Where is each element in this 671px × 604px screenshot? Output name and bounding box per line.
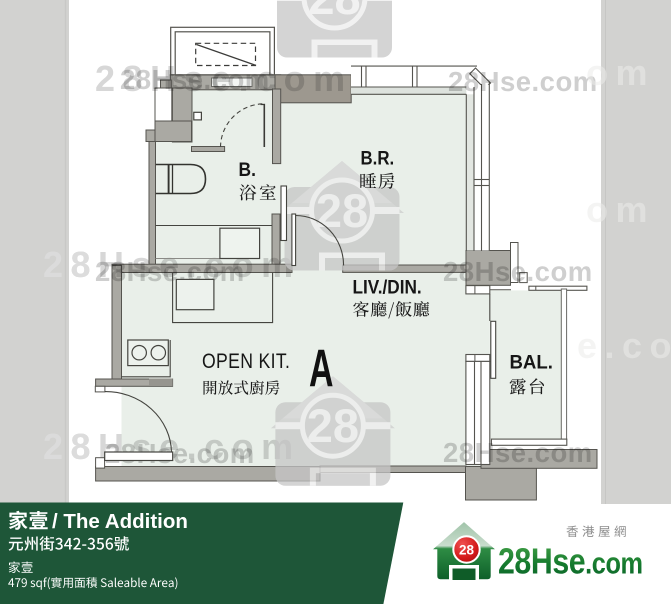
svg-text:28Hse.com: 28Hse.com xyxy=(443,437,593,468)
svg-text:LIV./DIN.: LIV./DIN. xyxy=(353,275,422,297)
svg-text:B.: B. xyxy=(239,158,256,180)
svg-text:OPEN KIT.: OPEN KIT. xyxy=(202,350,290,374)
svg-text:B.R.: B.R. xyxy=(361,146,395,169)
svg-text:om: om xyxy=(586,52,655,93)
svg-text:/ The Addition: / The Addition xyxy=(52,510,188,533)
svg-text:28: 28 xyxy=(43,244,98,285)
svg-text:28Hse.com: 28Hse.com xyxy=(95,256,245,287)
svg-text:e.com: e.com xyxy=(577,325,671,366)
svg-text:28Hse.com: 28Hse.com xyxy=(448,66,598,97)
svg-text:28Hse.com: 28Hse.com xyxy=(120,64,270,95)
svg-text:28: 28 xyxy=(43,426,98,467)
svg-text:om: om xyxy=(586,189,655,230)
svg-text:28Hse.com: 28Hse.com xyxy=(443,256,593,287)
svg-text:BAL.: BAL. xyxy=(510,352,553,374)
svg-text:28: 28 xyxy=(459,543,475,558)
svg-text:28Hse.com: 28Hse.com xyxy=(498,542,643,582)
svg-text:A: A xyxy=(309,340,334,398)
